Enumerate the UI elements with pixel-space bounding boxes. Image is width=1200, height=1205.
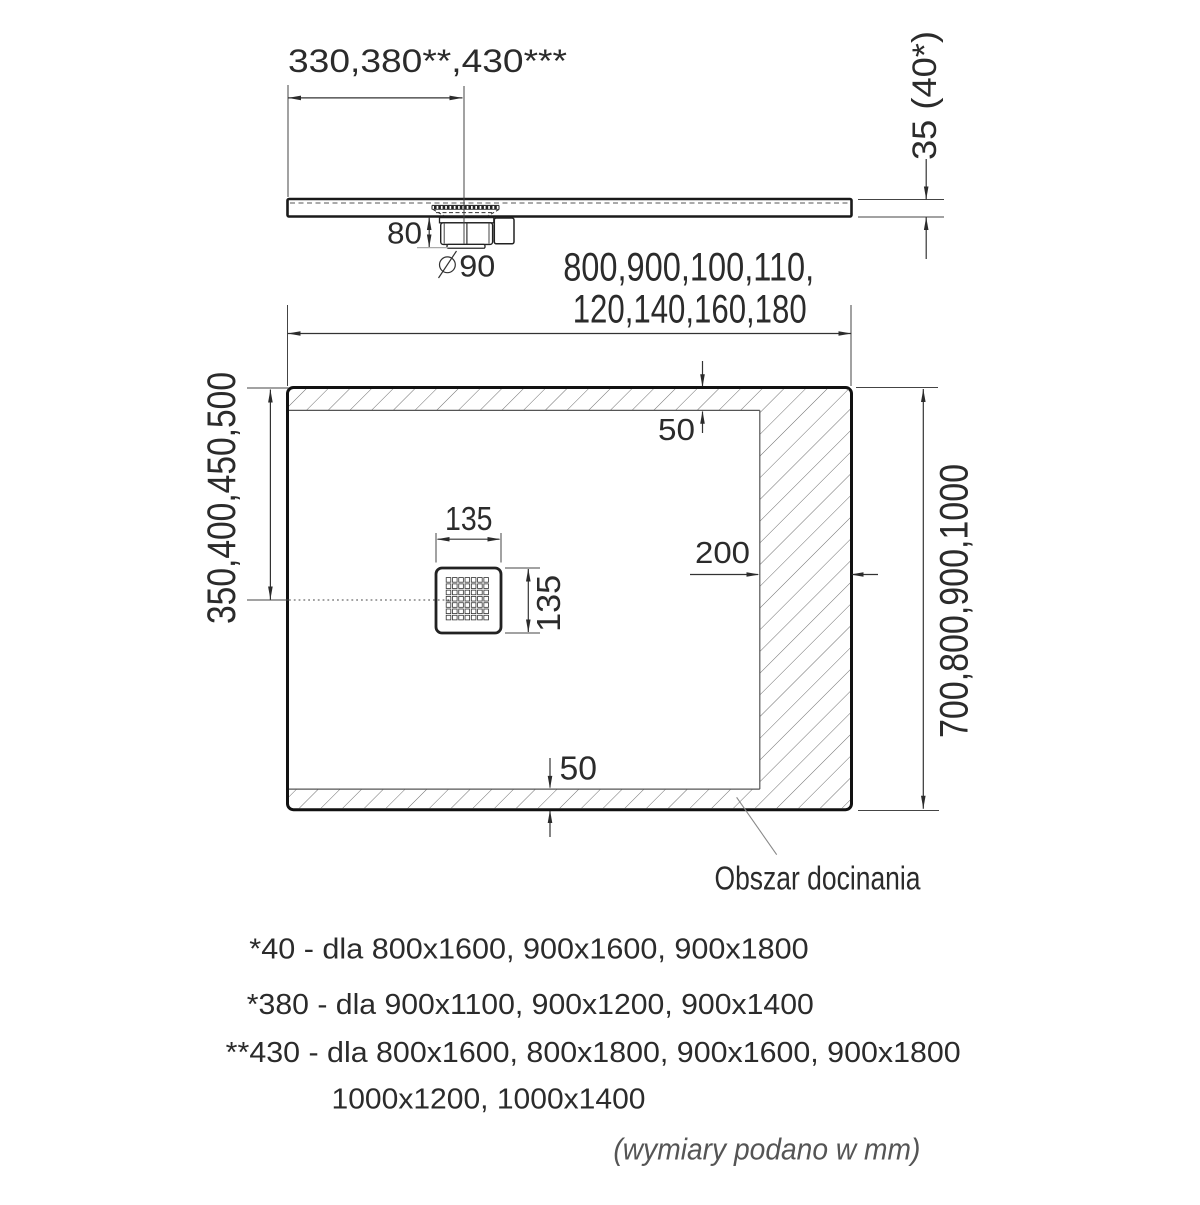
svg-text:350,400,450,500: 350,400,450,500	[200, 372, 244, 624]
svg-text:200: 200	[695, 535, 750, 570]
svg-text:**430 - dla 800x1600, 800x1800: **430 - dla 800x1600, 800x1800, 900x1600…	[226, 1037, 961, 1069]
svg-text:1000x1200, 1000x1400: 1000x1200, 1000x1400	[332, 1084, 646, 1116]
svg-text:50: 50	[658, 412, 695, 447]
svg-text:135: 135	[530, 575, 567, 632]
svg-text:50: 50	[560, 750, 598, 787]
svg-text:330,380**,430***: 330,380**,430***	[288, 43, 567, 79]
svg-text:700,800,900,1000: 700,800,900,1000	[933, 464, 977, 738]
svg-text:35 (40*): 35 (40*)	[906, 31, 944, 160]
svg-text:135: 135	[445, 500, 493, 537]
svg-text:Obszar docinania: Obszar docinania	[715, 860, 921, 897]
svg-text:(wymiary podano w mm): (wymiary podano w mm)	[613, 1132, 920, 1167]
svg-text:*380 - dla 900x1100, 900x1200,: *380 - dla 900x1100, 900x1200, 900x1400	[247, 989, 814, 1021]
svg-text:90: 90	[459, 249, 495, 284]
svg-text:800,900,100,110,: 800,900,100,110,	[563, 246, 814, 290]
svg-text:80: 80	[387, 216, 422, 251]
svg-text:*40 - dla 800x1600, 900x1600,: *40 - dla 800x1600, 900x1600, 900x1800	[249, 934, 808, 966]
svg-text:120,140,160,180: 120,140,160,180	[573, 288, 807, 332]
